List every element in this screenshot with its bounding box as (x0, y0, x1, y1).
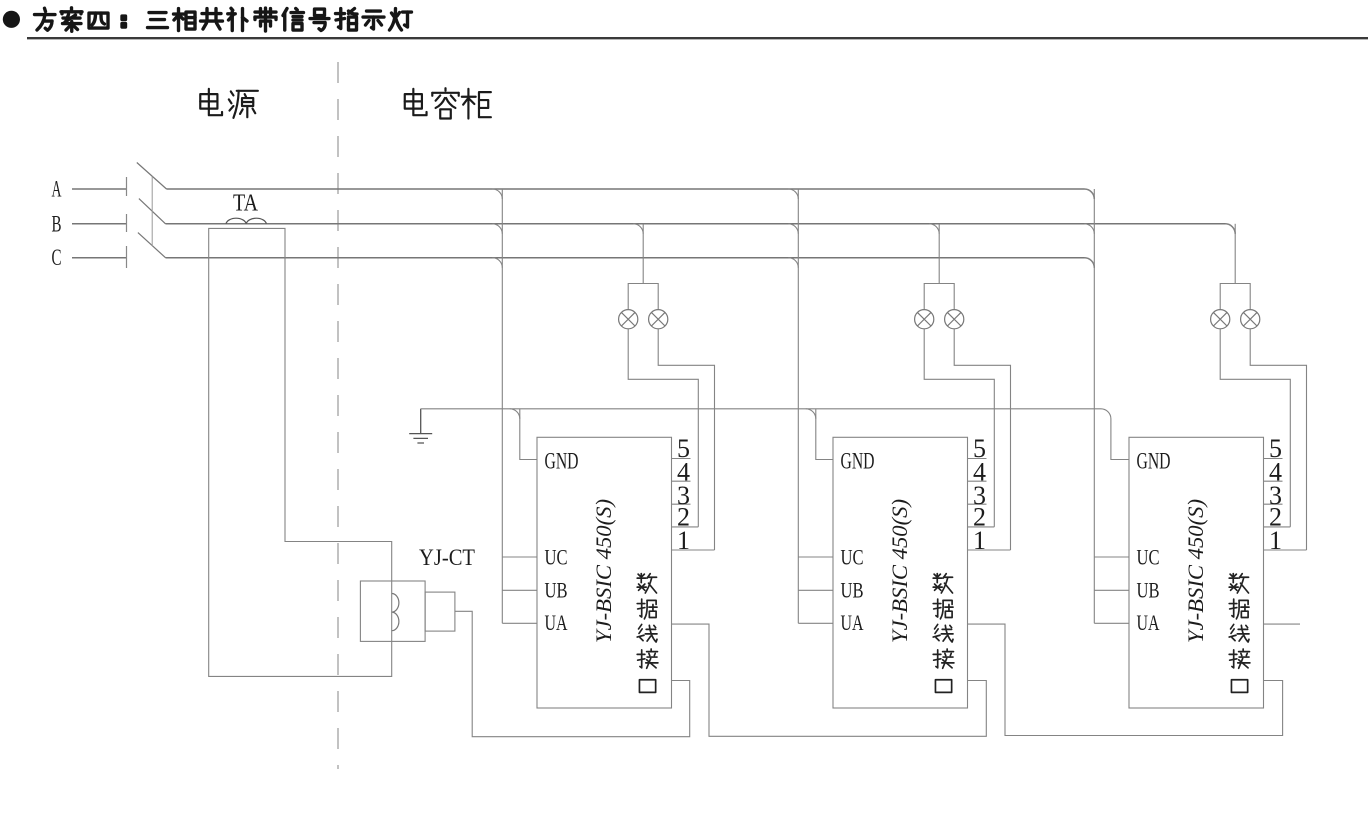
svg-text:UC: UC (1137, 545, 1160, 570)
svg-text:C: C (52, 245, 62, 270)
svg-text:GND: GND (545, 449, 579, 474)
svg-text:A: A (52, 177, 62, 202)
svg-text:UC: UC (841, 545, 864, 570)
svg-text:1: 1 (1269, 526, 1282, 555)
svg-text:UB: UB (545, 577, 568, 602)
svg-text:UB: UB (1137, 577, 1160, 602)
svg-text:UC: UC (545, 545, 568, 570)
svg-text:YJ-BSIC 450(S): YJ-BSIC 450(S) (591, 499, 616, 643)
svg-text:UB: UB (841, 577, 864, 602)
svg-text:UA: UA (545, 610, 568, 635)
svg-text:UA: UA (1137, 610, 1160, 635)
svg-text:TA: TA (233, 191, 259, 217)
svg-text:YJ-BSIC 450(S): YJ-BSIC 450(S) (1183, 499, 1208, 643)
svg-text:GND: GND (841, 449, 875, 474)
svg-text:B: B (52, 211, 62, 236)
svg-text:YJ-CT: YJ-CT (419, 545, 475, 570)
svg-text:YJ-BSIC 450(S): YJ-BSIC 450(S) (887, 499, 912, 643)
svg-text:UA: UA (841, 610, 864, 635)
svg-text:GND: GND (1137, 449, 1171, 474)
svg-text:1: 1 (973, 526, 986, 555)
svg-text:1: 1 (677, 526, 690, 555)
